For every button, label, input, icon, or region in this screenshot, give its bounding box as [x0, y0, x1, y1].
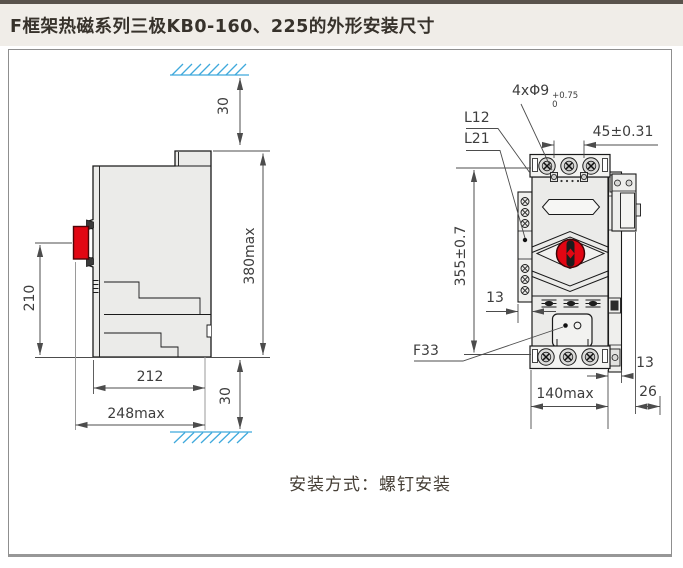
- top-terminal-strip: [530, 155, 610, 178]
- dim-right-rail-label: 13: [632, 355, 658, 371]
- bottom-terminal-strip: [530, 346, 610, 369]
- dim-bottom-clearance-label: 30: [218, 378, 234, 414]
- terminal-label-l12: L12: [464, 110, 500, 126]
- test-window: [553, 314, 593, 347]
- dim-overall-width-label: 140max: [528, 386, 602, 402]
- accessory-label-f33: F33: [413, 343, 449, 359]
- side-handle: [74, 227, 89, 260]
- dim-hole-pitch-v-label: 355±0.7: [453, 216, 469, 296]
- dim-hole-pitch-h-label: 45±0.31: [585, 124, 661, 140]
- side-view-drawing: [35, 64, 270, 443]
- terminal-label-l21: L21: [464, 131, 500, 147]
- hole-spec-label: 4xΦ9+0.750: [512, 83, 578, 110]
- page: { "title": "F框架热磁系列三极KB0-160、225的外形安装尺寸"…: [0, 0, 683, 568]
- vent-grilles: [542, 300, 601, 307]
- dim-top-clearance-label: 30: [216, 88, 232, 124]
- dim-attachment-label: 26: [634, 384, 662, 400]
- side-body-outline: [88, 151, 212, 357]
- mounting-note: 安装方式：螺钉安装: [240, 470, 500, 495]
- hole-tolerance-lower: 0: [552, 101, 578, 110]
- front-view-drawing: [414, 104, 660, 429]
- left-accessory-rail: [518, 192, 532, 302]
- nameplate-lens: [543, 200, 600, 215]
- mounting-surface-bottom-hatch: [170, 432, 252, 443]
- top-right-attachment: [612, 174, 641, 231]
- dim-handle-height-label: 210: [22, 276, 38, 320]
- dim-left-rail-label: 13: [482, 290, 508, 306]
- terminal-point-dot: [523, 238, 527, 242]
- dim-body-depth-label: 212: [118, 369, 182, 385]
- mounting-surface-top-hatch: [170, 64, 249, 75]
- hole-count-diameter: 4xΦ9: [512, 83, 549, 99]
- hole-tolerance: +0.750: [552, 92, 578, 110]
- dim-overall-height-label: 380max: [242, 222, 258, 290]
- dim-overall-depth-label: 248max: [96, 406, 176, 422]
